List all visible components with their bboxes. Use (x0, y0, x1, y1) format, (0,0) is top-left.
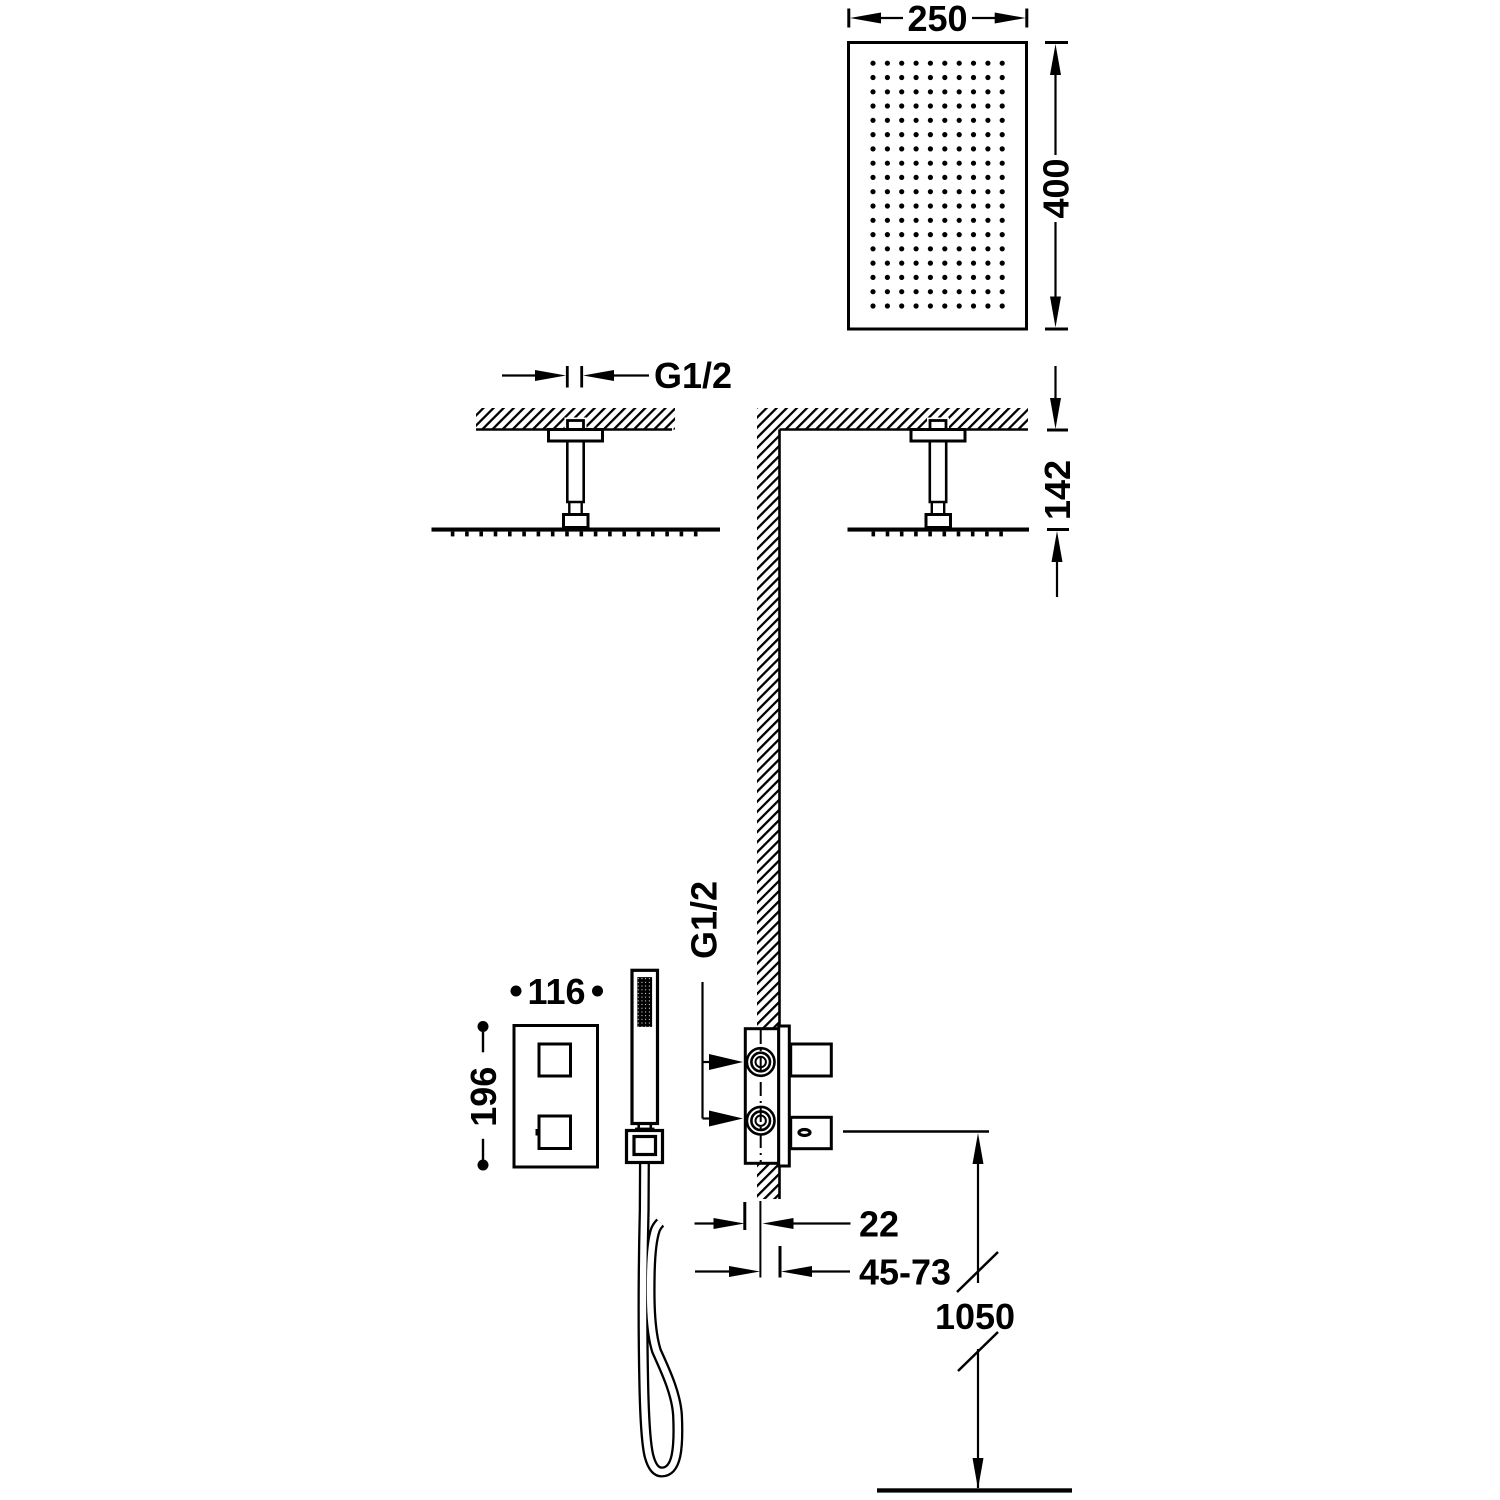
svg-text:1050: 1050 (935, 1296, 1015, 1337)
svg-text:G1/2: G1/2 (654, 355, 732, 396)
svg-text:45-73: 45-73 (859, 1252, 951, 1293)
svg-text:142: 142 (1037, 460, 1078, 520)
svg-text:22: 22 (859, 1204, 899, 1245)
svg-text:400: 400 (1036, 158, 1077, 218)
svg-text:116: 116 (527, 971, 585, 1012)
svg-text:G1/2: G1/2 (684, 881, 725, 959)
svg-text:250: 250 (907, 0, 967, 39)
svg-text:196: 196 (463, 1067, 504, 1127)
